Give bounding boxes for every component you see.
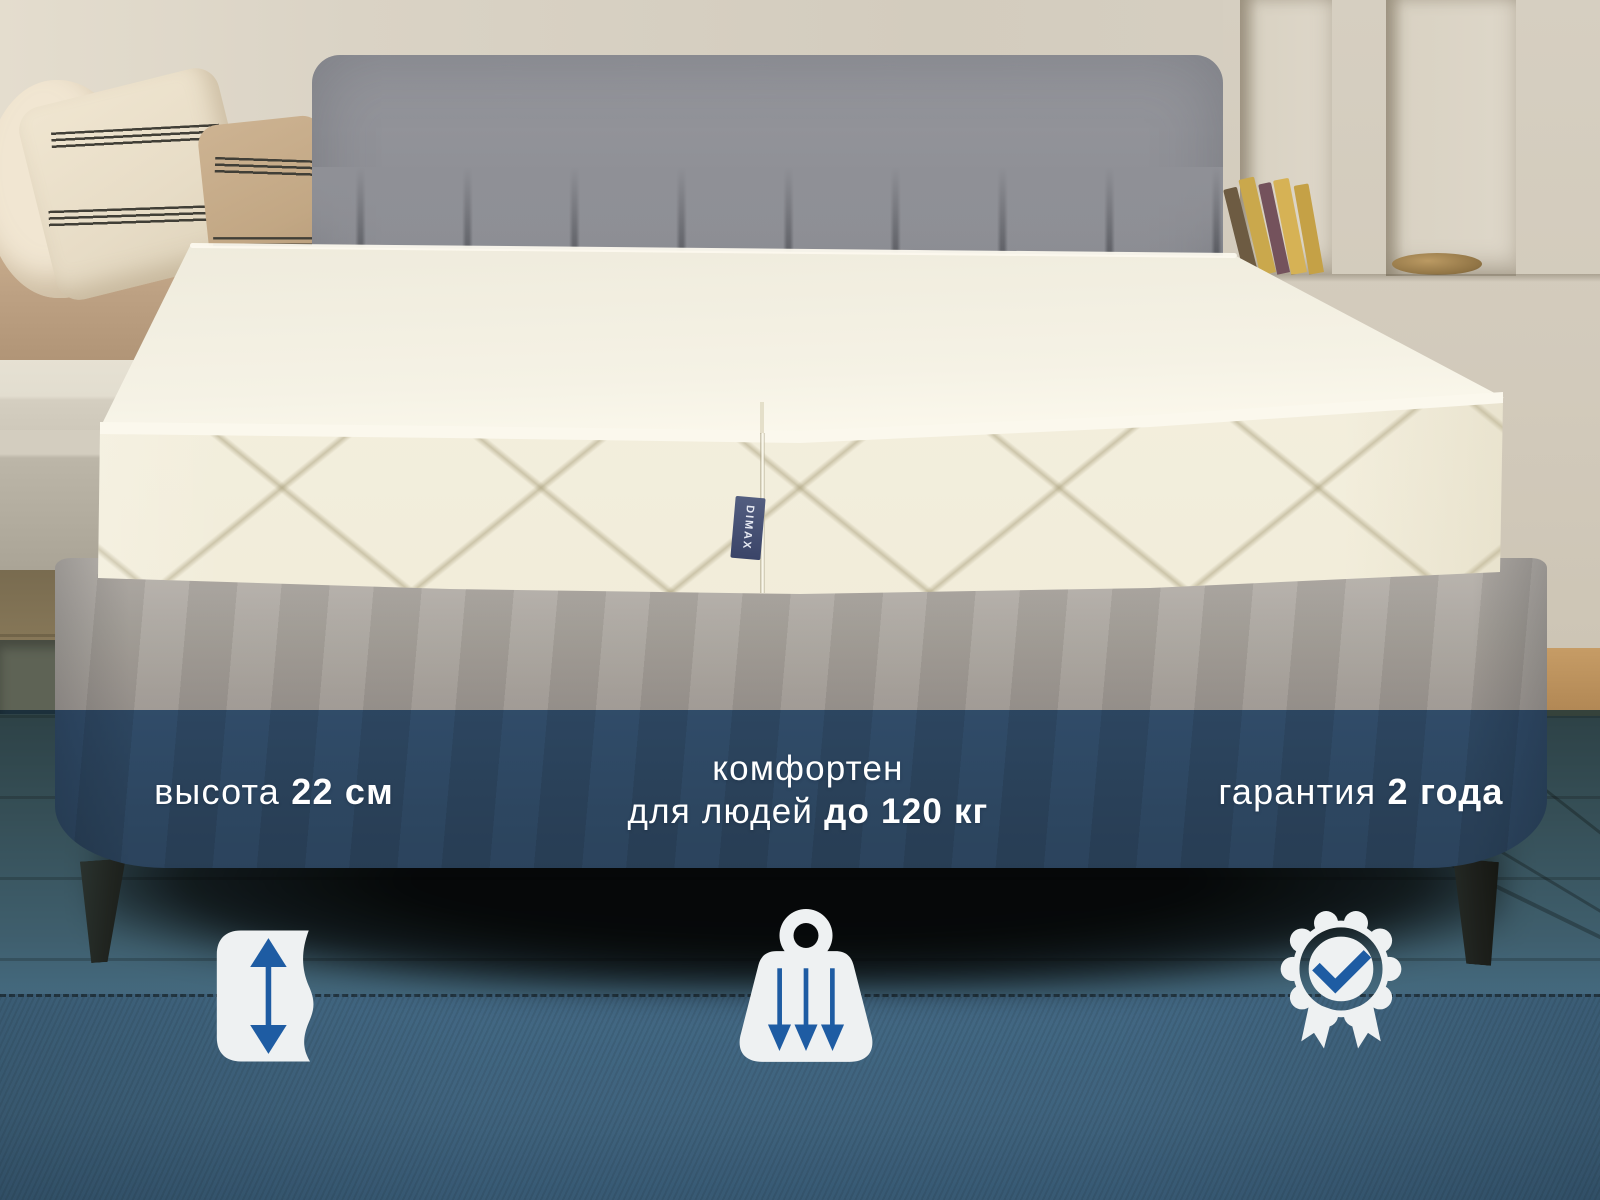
wood-slice-decor (1392, 253, 1482, 275)
warranty-label-text: гарантия (1218, 771, 1376, 812)
mattress-center-seam (760, 402, 764, 434)
pillow-stripe (51, 124, 220, 149)
comfort-weight-value: до 120 кг (824, 792, 988, 831)
warranty-badge-icon (1270, 902, 1412, 1070)
wall-niche-decor (1386, 0, 1516, 276)
feature-weight-label: комфортен для людей до 120 кг (590, 747, 1026, 833)
feature-warranty-label: гарантия 2 года (1140, 771, 1582, 813)
weight-load-icon (728, 903, 884, 1071)
height-value: 22 см (291, 771, 394, 812)
pillow-stripe (48, 205, 228, 227)
feature-height-label: высота 22 см (58, 771, 490, 813)
floor-planks-right (1540, 636, 1600, 716)
comfort-line1: комфортен (712, 749, 903, 788)
product-photo-mattress: DIMAX высота 22 см комфортен для людей д… (0, 0, 1600, 1200)
height-label-text: высота (154, 771, 280, 812)
brand-tag-label: DIMAX (740, 505, 756, 551)
comfort-line2-text: для людей (628, 792, 814, 831)
brand-tag: DIMAX (730, 496, 765, 560)
warranty-value: 2 года (1388, 771, 1504, 812)
height-double-arrow-icon (213, 928, 339, 1064)
wall-niche-books (1240, 0, 1332, 274)
